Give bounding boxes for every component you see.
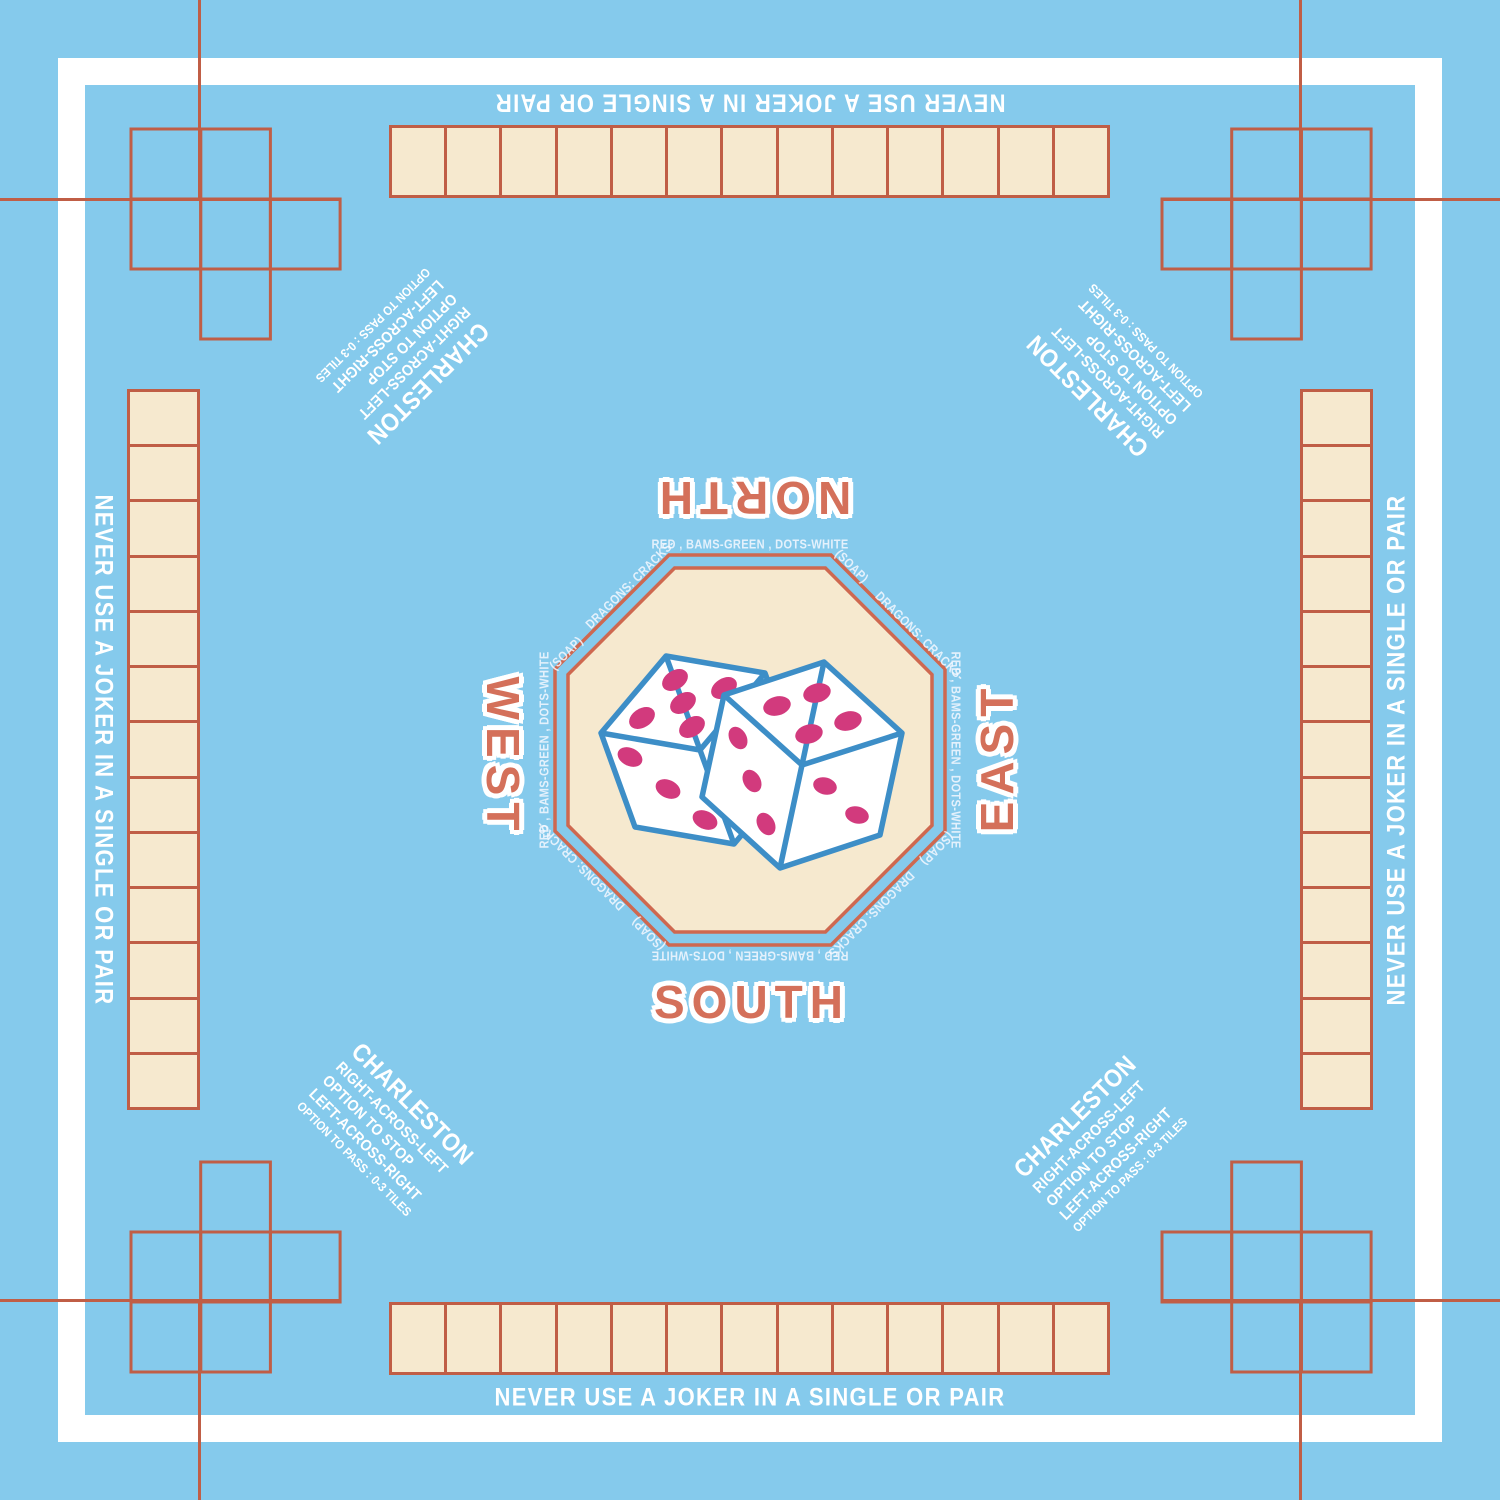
rack-tile [1303,779,1370,831]
cross-tile-outline [201,129,271,199]
corner-tile-cross-bottom-left [129,1160,342,1374]
joker-warning-west: NEVER USE A JOKER IN A SINGLE OR PAIR [89,495,118,1006]
joker-warning-east: NEVER USE A JOKER IN A SINGLE OR PAIR [1383,495,1412,1006]
cross-tile-outline [201,1302,271,1372]
rack-tile [130,779,197,831]
cross-tile-outline [1232,1232,1302,1302]
rack-tile [1303,944,1370,996]
corner-tile-cross-top-left [129,127,342,341]
corner-tile-cross-top-right [1160,127,1373,341]
rack-tile [889,1305,941,1372]
rack-tile [558,128,610,195]
rack-tile [834,128,886,195]
rack-tile [1000,1305,1052,1372]
corner-tile-cross-bottom-right [1160,1160,1373,1374]
rack-tile [944,128,996,195]
rack-tile [1303,889,1370,941]
rack-tile [668,1305,720,1372]
rack-tile [1303,613,1370,665]
cross-tile-outline [1301,1302,1371,1372]
rack-tile [1303,834,1370,886]
cross-tile-outline [201,199,271,269]
rack-tile [613,1305,665,1372]
cross-tile-outline [1232,1162,1302,1232]
cross-tile-outline [1232,269,1302,339]
cross-tile-outline [1301,1232,1371,1302]
rack-tile [1303,723,1370,775]
rack-tile [668,128,720,195]
tile-rack-south [389,1302,1110,1375]
rack-tile [1303,1055,1370,1107]
rack-tile [1000,128,1052,195]
cross-tile-outline [1162,1232,1232,1302]
rack-tile [130,723,197,775]
cross-tile-outline [1232,129,1302,199]
joker-warning-south: NEVER USE A JOKER IN A SINGLE OR PAIR [495,1384,1006,1413]
cross-tile-outline [131,1302,201,1372]
cross-tile-outline [1162,199,1232,269]
direction-label-west: WEST [476,677,530,838]
tile-rack-north [389,125,1110,198]
rack-tile [392,128,444,195]
cross-tile-outline [1301,199,1371,269]
rack-tile [889,128,941,195]
rack-tile [1303,502,1370,554]
rack-tile [447,1305,499,1372]
rack-tile [130,392,197,444]
cross-tile-outline [1232,199,1302,269]
rack-tile [1055,1305,1107,1372]
rack-tile [502,128,554,195]
rack-tile [1303,558,1370,610]
rack-tile [1055,128,1107,195]
cross-tile-outline [270,199,340,269]
cross-tile-outline [201,1162,271,1232]
direction-label-south: SOUTH [654,975,850,1029]
rack-tile [130,447,197,499]
rack-tile [1303,1000,1370,1052]
cross-tile-outline [131,1232,201,1302]
rack-tile [130,668,197,720]
rack-tile [1303,447,1370,499]
cross-tile-outline [270,1232,340,1302]
rack-tile [1303,668,1370,720]
mahjong-mat: NEVER USE A JOKER IN A SINGLE OR PAIR NE… [0,0,1500,1500]
rack-tile [502,1305,554,1372]
rack-tile [130,1000,197,1052]
cross-tile-outline [1301,129,1371,199]
rack-tile [613,128,665,195]
rack-tile [130,944,197,996]
rack-tile [834,1305,886,1372]
rack-tile [558,1305,610,1372]
rack-tile [392,1305,444,1372]
rack-tile [779,1305,831,1372]
direction-label-north: NORTH [653,471,852,525]
tile-rack-west [127,389,200,1110]
direction-label-east: EAST [970,682,1024,833]
joker-warning-north: NEVER USE A JOKER IN A SINGLE OR PAIR [495,88,1006,117]
rack-tile [130,889,197,941]
rack-tile [130,613,197,665]
cross-tile-outline [201,1232,271,1302]
rack-tile [779,128,831,195]
cross-tile-outline [131,199,201,269]
rack-tile [130,502,197,554]
rack-tile [1303,392,1370,444]
cross-tile-outline [131,129,201,199]
cross-tile-outline [201,269,271,339]
ring-text-north-edge: RED , BAMS-GREEN , DOTS-WHITE [651,537,848,552]
rack-tile [944,1305,996,1372]
rack-tile [130,834,197,886]
rack-tile [130,1055,197,1107]
rack-tile [447,128,499,195]
tile-rack-east [1300,389,1373,1110]
ring-text-west-edge: RED , BAMS-GREEN , DOTS-WHITE [537,651,552,848]
ring-text-south-edge: RED , BAMS-GREEN , DOTS-WHITE [651,949,848,964]
rack-tile [723,128,775,195]
ring-text-east-edge: RED , BAMS-GREEN , DOTS-WHITE [949,651,964,848]
rack-tile [130,558,197,610]
cross-tile-outline [1232,1302,1302,1372]
rack-tile [723,1305,775,1372]
